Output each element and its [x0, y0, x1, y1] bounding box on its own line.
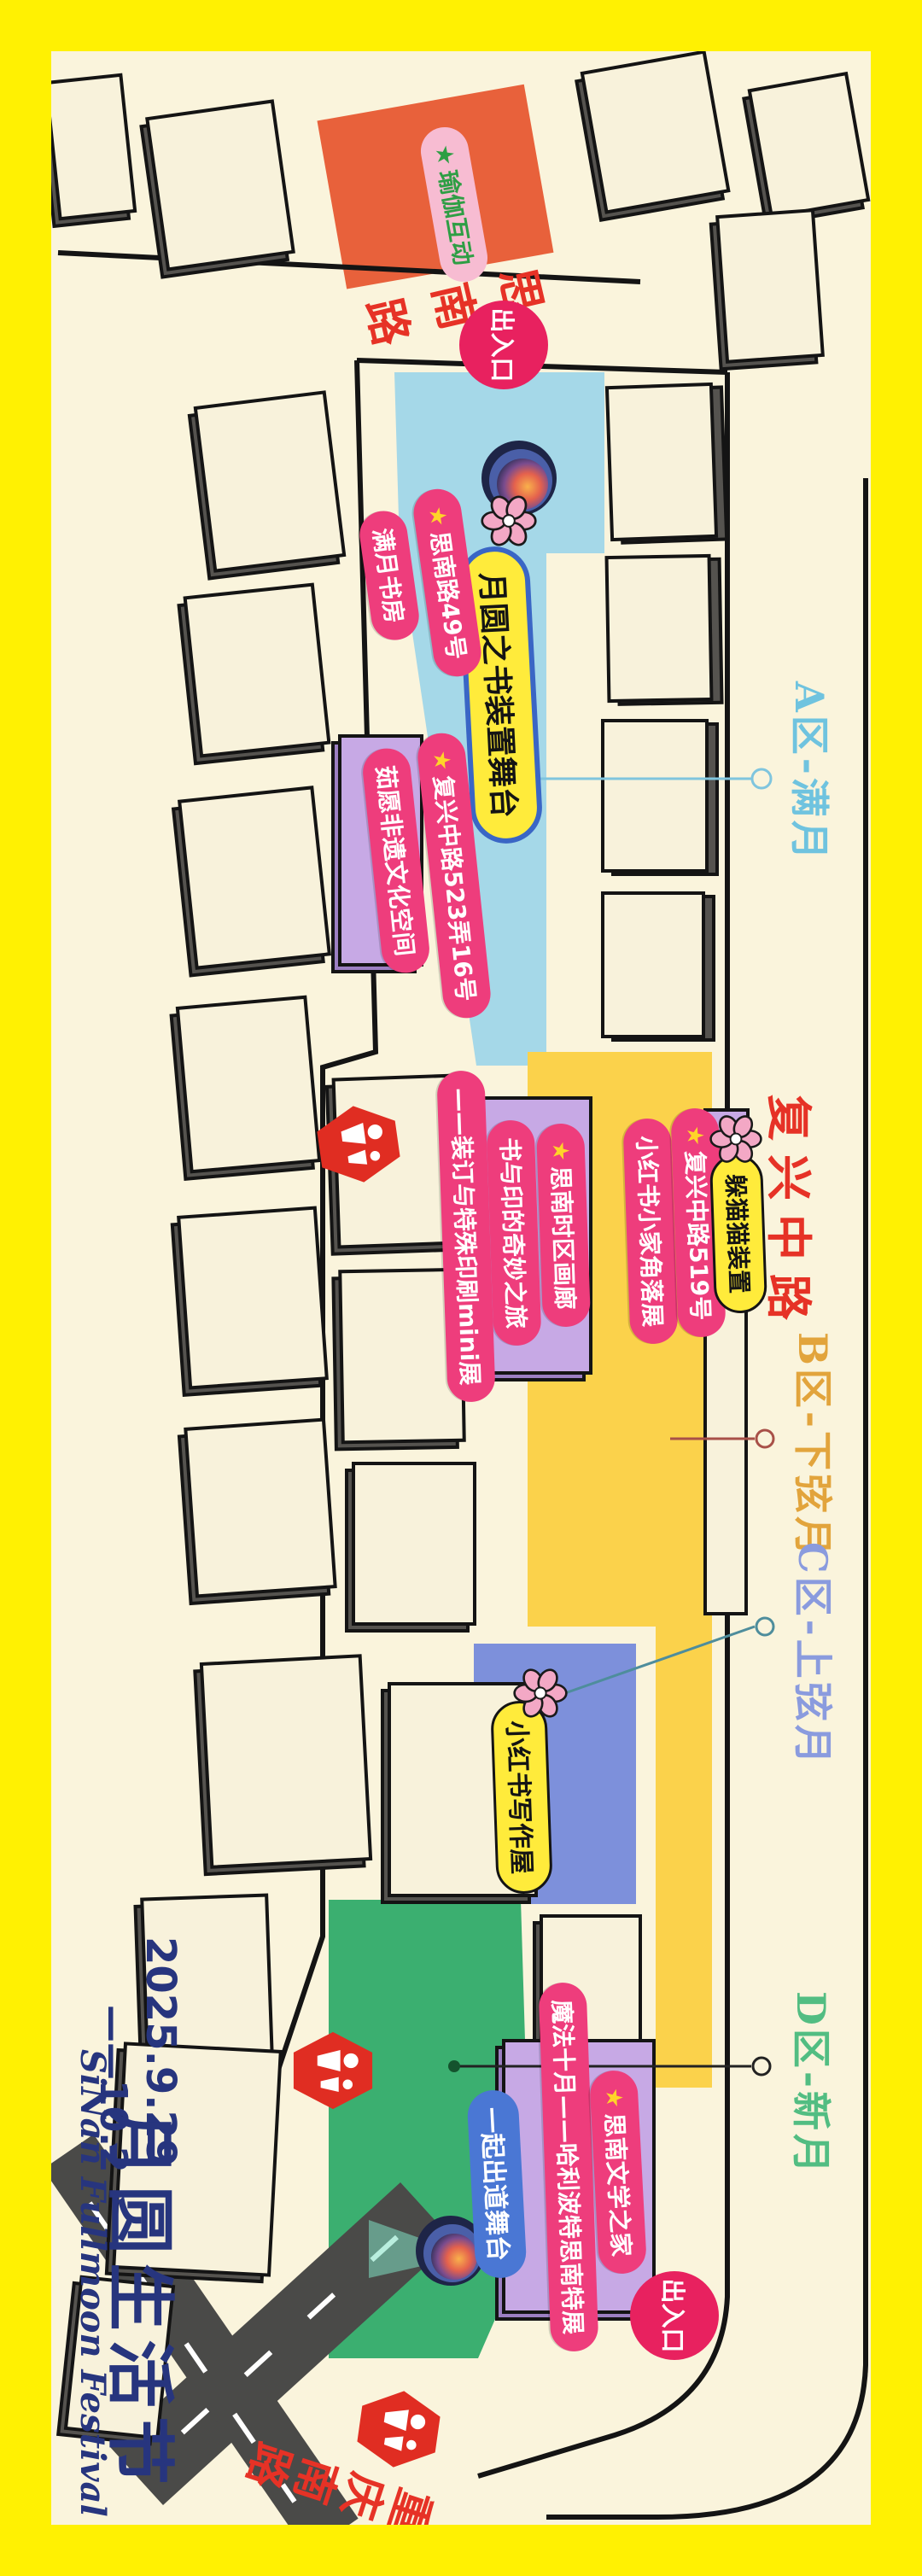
entrance-badge: 出入口 — [630, 2271, 719, 2360]
entrance-badge: 出入口 — [459, 301, 548, 389]
xhs-corner-label: 小红书小家角落展 — [630, 1135, 671, 1327]
restroom-icon — [290, 2030, 376, 2112]
star-icon: ★ — [429, 142, 461, 167]
star-icon: ★ — [600, 2087, 627, 2108]
festival-map-poster: .bs{fill:#55534F;stroke:#141414;stroke-w… — [0, 0, 922, 2576]
entrance-label: 出入口 — [486, 307, 522, 382]
flower-icon — [480, 492, 538, 550]
road-label-fuxing: 复兴中路 — [759, 1095, 826, 1334]
zone-label-d: D区-新月 — [785, 1991, 842, 2176]
star-icon: ★ — [428, 749, 456, 772]
zone-label-c: C区-上弦月 — [787, 1542, 843, 1767]
restroom-icon — [351, 2383, 446, 2476]
flower-icon — [512, 1665, 569, 1721]
flower-icon — [709, 1112, 763, 1166]
xhs-corner-pill: 小红书小家角落展 — [622, 1118, 678, 1345]
zone-label-a: A区-满月 — [784, 681, 840, 863]
restroom-icon — [311, 1098, 406, 1191]
hide-cat-pill: 躲猫猫装置 — [709, 1154, 767, 1314]
debut-stage-label: 一起出道舞台 — [474, 2106, 519, 2262]
xhs-writing-house-label: 小红书写作屋 — [500, 1720, 543, 1874]
magic-october-label: 魔法十月——哈利波特思南特展 — [546, 1999, 592, 2334]
print-exhibition-title: 书与印的奇妙之旅 — [493, 1136, 534, 1329]
print-exhibition-subtitle: ——装订与特殊印刷mini展 — [444, 1087, 488, 1385]
fullmoon-bookstore-label: 满月书房 — [365, 526, 412, 625]
print-exhibition-title-pill: 书与印的奇妙之旅 — [486, 1119, 541, 1346]
map-stage: .bs{fill:#55534F;stroke:#141414;stroke-w… — [0, 0, 922, 2576]
sinan-gallery-pill: ★ 思南时区画廊 — [536, 1123, 591, 1328]
star-icon: ★ — [423, 505, 452, 529]
debut-stage-pill: 一起出道舞台 — [466, 2089, 527, 2280]
moon-book-stage-label: 月圆之书装置舞台 — [471, 571, 528, 819]
title-subtitle: SiNan Fullmoon Festival — [73, 2049, 113, 2517]
sinan-gallery-label: 思南时区画廊 — [545, 1165, 584, 1310]
hide-cat-label: 躲猫猫装置 — [720, 1173, 758, 1294]
entrance-label: 出入口 — [656, 2278, 692, 2352]
literature-house-label: 思南文学之家 — [598, 2112, 639, 2258]
yoga-spot-label: 瑜伽互动 — [431, 167, 481, 267]
star-icon: ★ — [547, 1141, 575, 1162]
zone-label-b: B区-下弦月 — [787, 1332, 843, 1559]
star-icon: ★ — [682, 1125, 709, 1147]
xhs-writing-house-pill: 小红书写作屋 — [490, 1700, 553, 1895]
